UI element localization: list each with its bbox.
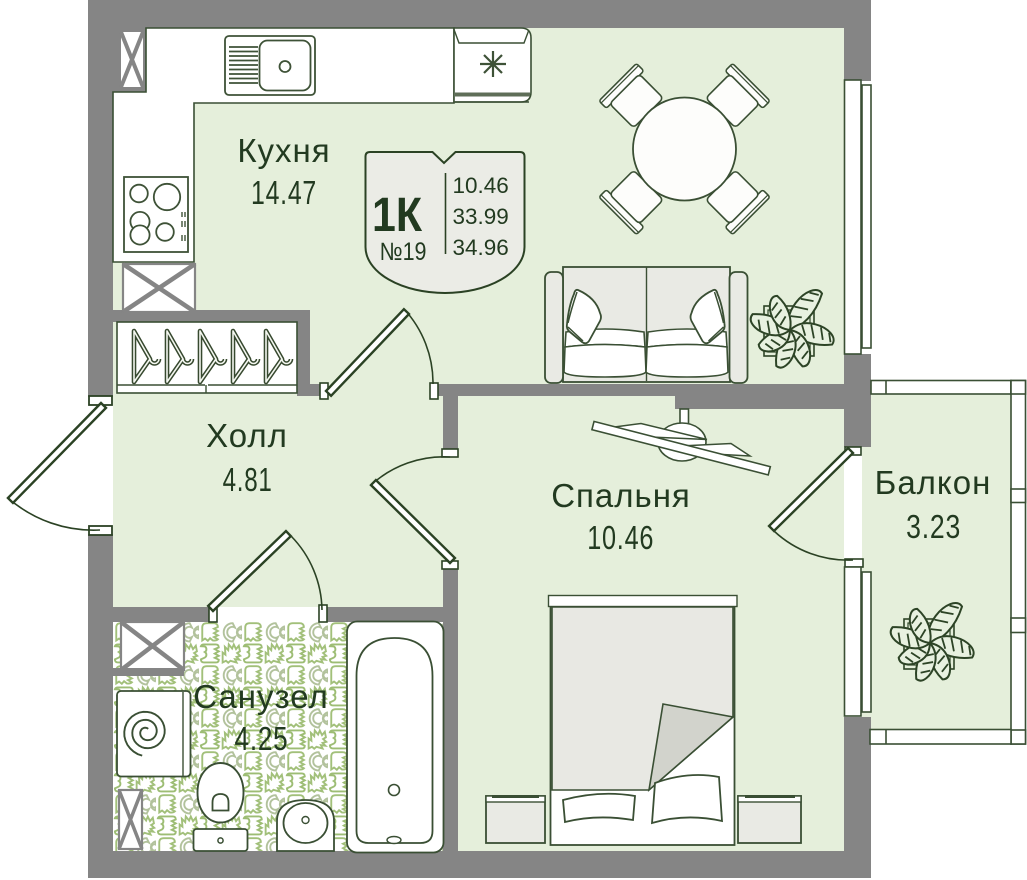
svg-text:34.96: 34.96 xyxy=(453,235,509,260)
svg-text:Спальня: Спальня xyxy=(551,477,691,514)
svg-text:14.47: 14.47 xyxy=(251,174,317,211)
svg-text:10.46: 10.46 xyxy=(453,173,509,198)
svg-text:33.99: 33.99 xyxy=(453,204,509,229)
svg-text:Санузел: Санузел xyxy=(193,678,329,715)
svg-text:4.25: 4.25 xyxy=(235,720,289,757)
svg-text:10.46: 10.46 xyxy=(587,519,654,556)
svg-text:Балкон: Балкон xyxy=(875,464,992,501)
svg-text:№19: №19 xyxy=(380,238,427,266)
svg-text:Холл: Холл xyxy=(206,417,288,454)
svg-text:1К: 1К xyxy=(372,189,423,242)
svg-text:4.81: 4.81 xyxy=(223,461,273,498)
svg-text:3.23: 3.23 xyxy=(906,508,961,545)
svg-text:Кухня: Кухня xyxy=(237,132,330,169)
